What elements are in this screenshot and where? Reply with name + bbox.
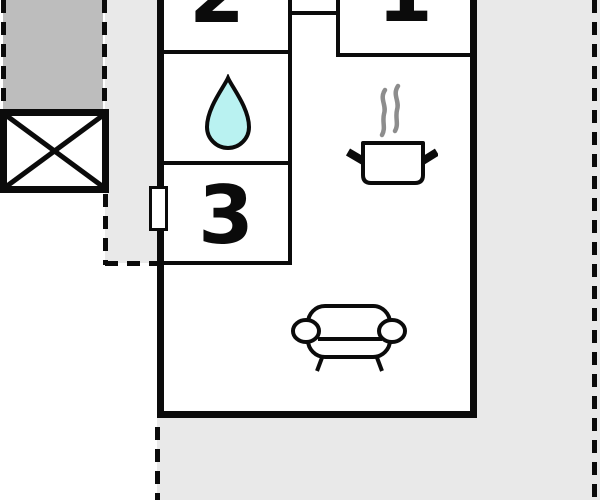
outer-wall-bottom bbox=[157, 411, 477, 418]
boundary-dash-passage-end bbox=[105, 261, 157, 266]
surrounding-area-bottom bbox=[157, 418, 477, 500]
interior-wall-entry bbox=[292, 11, 340, 15]
interior-wall-bathroom-bottom bbox=[164, 161, 288, 165]
elevator-shaft bbox=[0, 109, 109, 193]
boundary-dash-inner-top bbox=[102, 0, 107, 109]
interior-wall-room1-left bbox=[336, 0, 340, 57]
crossed-box-icon bbox=[7, 116, 102, 186]
floor-plan: 1 2 3 bbox=[0, 0, 600, 500]
boundary-dash-left bbox=[1, 0, 6, 109]
surrounding-area-right bbox=[477, 0, 600, 500]
room-1-label: 1 bbox=[377, 0, 433, 34]
boundary-dash-bottom-left bbox=[155, 427, 160, 500]
interior-wall-room1-bottom bbox=[336, 53, 470, 57]
interior-wall-hall bbox=[288, 0, 292, 265]
window-marker bbox=[149, 186, 168, 231]
boundary-dash-right bbox=[592, 0, 597, 500]
sofa-icon bbox=[290, 303, 407, 373]
room-3-label: 3 bbox=[198, 176, 254, 256]
interior-wall-room2-bottom bbox=[164, 50, 288, 54]
room-2-label: 2 bbox=[189, 0, 245, 35]
water-drop-icon bbox=[203, 74, 253, 150]
outer-wall-right bbox=[470, 0, 477, 418]
boundary-dash-inner-mid bbox=[103, 194, 108, 265]
cooking-pot-icon bbox=[338, 82, 438, 187]
adjacent-building-area bbox=[3, 0, 103, 109]
